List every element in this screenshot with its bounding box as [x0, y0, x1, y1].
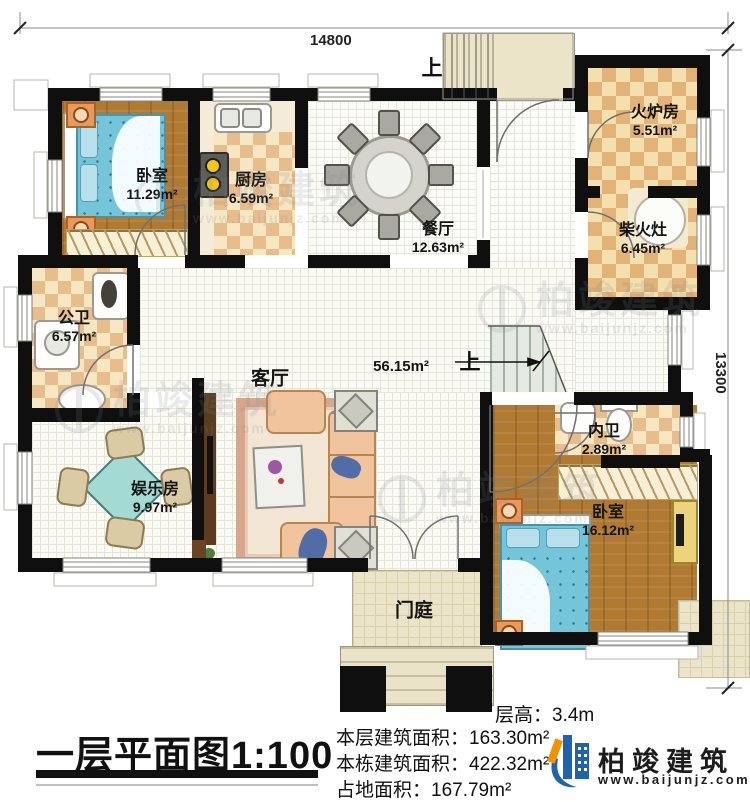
info-building-area: 本栋建筑面积：422.32m² [336, 749, 549, 776]
room-label-dining: 餐厅 12.63m² [412, 220, 464, 256]
room-name: 娱乐房 [131, 480, 179, 499]
bed2-nightstand-bottom [495, 620, 523, 646]
dimension-width: 14800 [310, 32, 352, 49]
room-name: 厨房 [229, 171, 273, 190]
plan-title-text: 一层平面图 [36, 735, 231, 777]
dining-chair [324, 164, 350, 186]
title-underline-thin [36, 784, 318, 786]
stairs-up-label-rear: 上 [422, 52, 443, 82]
kitchen-burner-2 [205, 176, 221, 192]
info-floor-area: 本层建筑面积：163.30m² [336, 723, 549, 750]
room-area: 2.89m² [582, 441, 626, 458]
game-chair [56, 466, 91, 508]
game-chair [104, 426, 146, 461]
dining-chair [378, 214, 400, 240]
room-label-bedroom1: 卧室 11.29m² [126, 167, 177, 203]
room-label-kitchen: 厨房 6.59m² [229, 171, 273, 207]
room-area-living: 56.15m² [373, 358, 429, 376]
room-name: 内卫 [582, 422, 626, 441]
room-area: 11.29m² [126, 186, 177, 203]
bathroom-sink [58, 384, 106, 414]
room-label-public-bathroom: 公卫 6.57m² [52, 309, 96, 345]
entry-porch-steps [340, 646, 494, 706]
room-area: 6.45m² [619, 240, 667, 257]
stairs-up-label-main: 上 [460, 346, 481, 376]
room-label-bedroom2: 卧室 16.12m² [582, 503, 634, 539]
room-area: 6.57m² [52, 328, 96, 345]
floor-plan: 14800 13300 卧室 11.29m² 厨房 6.59m² 餐厅 12.6… [0, 0, 750, 802]
room-label-living: 客厅 [251, 369, 289, 392]
dining-chair [378, 110, 400, 136]
room-label-ensuite: 内卫 2.89m² [582, 422, 626, 458]
room-name: 卧室 [582, 503, 634, 522]
tv [207, 436, 213, 494]
room-area: 16.12m² [582, 522, 634, 539]
room-area: 9.97m² [131, 499, 179, 516]
room-area: 12.63m² [412, 239, 464, 256]
room-label-entertainment: 娱乐房 9.97m² [131, 480, 179, 516]
dimension-height: 13300 [712, 352, 729, 394]
room-name: 公卫 [52, 309, 96, 328]
side-table-bottom [334, 526, 378, 570]
room-label-stove-room: 火炉房 5.51m² [631, 103, 679, 139]
coffee-table-flowers [268, 460, 282, 474]
bed2-pillow-left [506, 528, 540, 548]
room-area: 56.15m² [373, 358, 429, 376]
kitchen-sink-basin-right [242, 108, 262, 128]
brand-logo-icon [543, 731, 593, 793]
plant-small [203, 548, 215, 559]
bed1-wardrobe [66, 229, 188, 257]
plan-title: 一层平面图1:100 [36, 724, 333, 779]
room-label-firewood-stove: 柴火灶 6.45m² [619, 221, 667, 257]
floor-rear-porch [443, 33, 575, 101]
squat-toilet-bowl [101, 280, 117, 308]
dining-table-top [365, 151, 413, 199]
side-table-top [334, 390, 378, 432]
logo-orange-bar [547, 738, 563, 763]
floor-hall-east [575, 310, 668, 392]
room-name: 客厅 [251, 369, 289, 392]
room-name: 门庭 [395, 601, 433, 624]
brand-url: www.baijunjz.com [598, 772, 750, 787]
coffee-table [252, 445, 305, 510]
info-footprint-area: 占地面积：167.79m² [336, 775, 511, 802]
room-name: 卧室 [126, 167, 177, 186]
bed1-pillow-bottom [80, 164, 98, 202]
game-chair [104, 516, 146, 551]
dining-chair [428, 164, 454, 186]
logo-blue-bar [563, 735, 572, 779]
bed2-pillow-right [546, 528, 580, 548]
kitchen-burner-1 [205, 158, 221, 174]
bed2-nightstand-top [495, 498, 523, 524]
kitchen-sink-basin-left [220, 108, 240, 128]
room-name: 餐厅 [412, 220, 464, 239]
terrace-bottom-right [678, 600, 750, 678]
bed2-tv [676, 514, 684, 546]
room-area: 6.59m² [229, 190, 273, 207]
bed1-nightstand-top [66, 102, 96, 128]
room-area: 5.51m² [631, 122, 679, 139]
room-label-entry-porch: 门庭 [395, 601, 433, 624]
room-name: 柴火灶 [619, 221, 667, 240]
bed2-wardrobe [558, 464, 698, 500]
room-name: 火炉房 [631, 103, 679, 122]
plan-scale: 1:100 [231, 735, 333, 777]
armchair-top [266, 390, 326, 434]
